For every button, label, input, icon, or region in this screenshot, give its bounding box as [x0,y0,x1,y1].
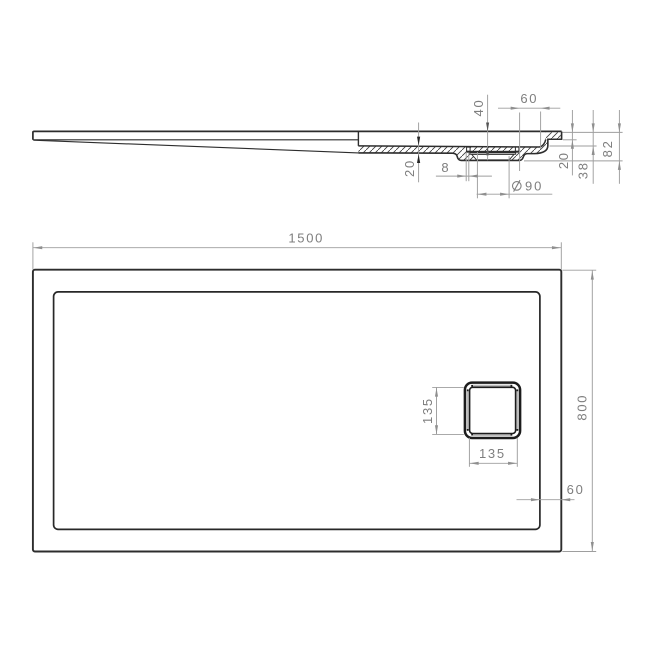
svg-text:90: 90 [525,179,543,194]
svg-text:20: 20 [402,159,417,177]
svg-text:135: 135 [420,397,435,424]
svg-text:1500: 1500 [288,230,324,245]
svg-text:60: 60 [520,91,538,106]
svg-text:82: 82 [600,139,615,157]
svg-text:8: 8 [441,160,448,175]
svg-text:135: 135 [479,446,506,461]
svg-text:40: 40 [471,99,486,117]
svg-text:38: 38 [576,161,591,179]
svg-text:20: 20 [556,151,571,169]
svg-text:800: 800 [574,394,589,421]
svg-text:60: 60 [567,482,585,497]
